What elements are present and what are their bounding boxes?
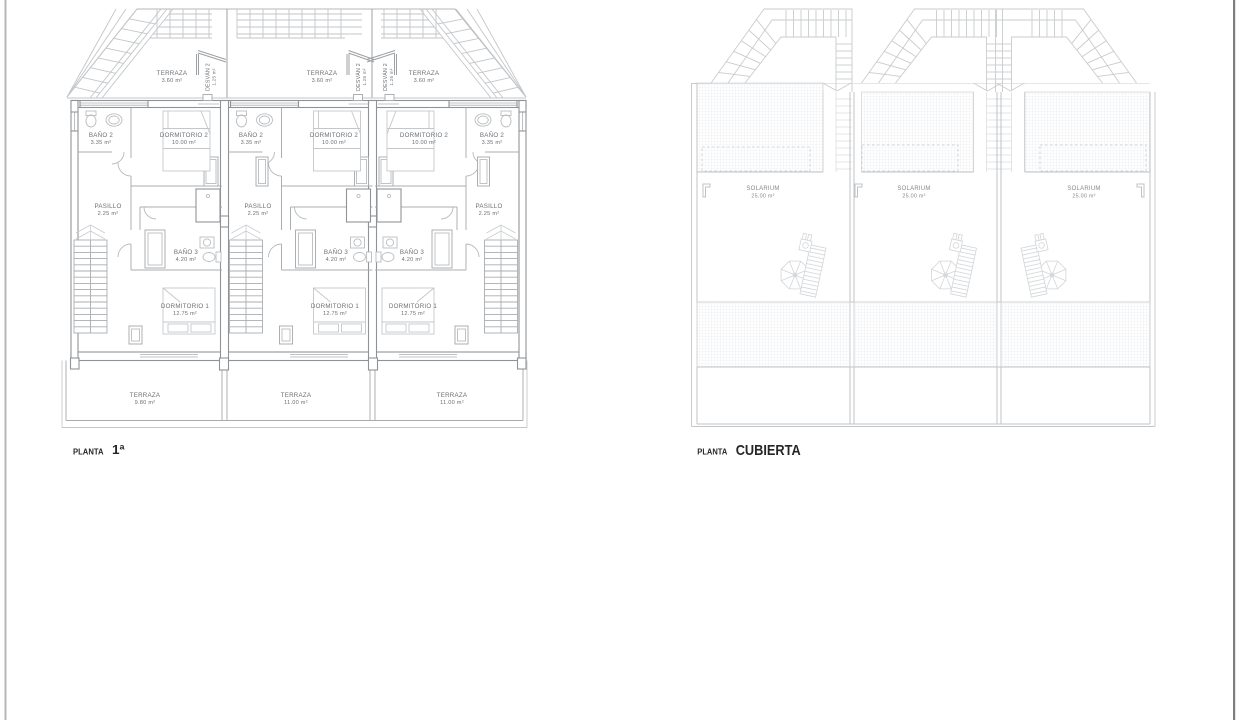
svg-text:DORMITORIO 1: DORMITORIO 1: [311, 303, 360, 310]
svg-text:4.20 m²: 4.20 m²: [326, 257, 347, 263]
svg-text:3.60 m²: 3.60 m²: [162, 78, 183, 84]
svg-text:25.00 m²: 25.00 m²: [1072, 194, 1095, 200]
svg-text:BAÑO 2: BAÑO 2: [89, 132, 114, 139]
svg-text:12.75 m²: 12.75 m²: [323, 311, 347, 317]
svg-text:10.00 m²: 10.00 m²: [172, 140, 196, 146]
svg-text:TERRAZA: TERRAZA: [409, 70, 440, 77]
svg-text:TERRAZA: TERRAZA: [157, 70, 188, 77]
svg-text:BAÑO 3: BAÑO 3: [400, 249, 425, 256]
svg-text:PASILLO: PASILLO: [244, 203, 271, 210]
svg-text:CUBIERTA: CUBIERTA: [736, 443, 801, 459]
svg-text:3.35 m²: 3.35 m²: [241, 140, 262, 146]
svg-text:2.25 m²: 2.25 m²: [479, 211, 500, 217]
svg-text:3.35 m²: 3.35 m²: [91, 140, 112, 146]
svg-text:10.00 m²: 10.00 m²: [322, 140, 346, 146]
svg-text:3.60 m²: 3.60 m²: [312, 78, 333, 84]
svg-text:4.20 m²: 4.20 m²: [402, 257, 423, 263]
svg-text:SOLARIUM: SOLARIUM: [1067, 186, 1100, 192]
svg-text:25.00 m²: 25.00 m²: [751, 194, 774, 200]
svg-text:PASILLO: PASILLO: [94, 203, 121, 210]
svg-text:9.80 m²: 9.80 m²: [135, 400, 156, 406]
svg-text:11.00 m²: 11.00 m²: [440, 400, 464, 406]
svg-text:12.75 m²: 12.75 m²: [401, 311, 425, 317]
svg-text:1ª: 1ª: [112, 442, 125, 457]
svg-text:12.75 m²: 12.75 m²: [173, 311, 197, 317]
svg-text:PLANTA: PLANTA: [697, 446, 727, 456]
svg-text:DORMITORIO 2: DORMITORIO 2: [160, 132, 209, 139]
svg-text:TERRAZA: TERRAZA: [437, 392, 468, 399]
svg-text:3.60 m²: 3.60 m²: [414, 78, 435, 84]
svg-text:PASILLO: PASILLO: [475, 203, 502, 210]
svg-text:11.00 m²: 11.00 m²: [284, 400, 308, 406]
svg-text:BAÑO 2: BAÑO 2: [239, 132, 264, 139]
svg-text:DESVÁN 2: DESVÁN 2: [205, 63, 212, 91]
svg-text:BAÑO 2: BAÑO 2: [480, 132, 505, 139]
svg-text:DESVÁN 2: DESVÁN 2: [355, 63, 362, 91]
svg-text:DORMITORIO 2: DORMITORIO 2: [400, 132, 449, 139]
svg-text:10.00 m²: 10.00 m²: [412, 140, 436, 146]
svg-text:TERRAZA: TERRAZA: [130, 392, 161, 399]
svg-text:2.25 m²: 2.25 m²: [248, 211, 269, 217]
svg-text:BAÑO 3: BAÑO 3: [174, 249, 199, 256]
svg-text:SOLARIUM: SOLARIUM: [897, 186, 930, 192]
svg-text:1.25 m²: 1.25 m²: [362, 68, 367, 86]
svg-text:SOLARIUM: SOLARIUM: [746, 186, 779, 192]
svg-text:BAÑO 3: BAÑO 3: [324, 249, 349, 256]
svg-text:2.25 m²: 2.25 m²: [98, 211, 119, 217]
svg-text:4.20 m²: 4.20 m²: [176, 257, 197, 263]
svg-text:1.25 m²: 1.25 m²: [389, 68, 394, 86]
svg-text:1.25 m²: 1.25 m²: [212, 68, 217, 86]
svg-text:TERRAZA: TERRAZA: [307, 70, 338, 77]
svg-text:DORMITORIO 1: DORMITORIO 1: [389, 303, 438, 310]
svg-text:25.00 m²: 25.00 m²: [902, 194, 925, 200]
svg-text:DESVÁN 2: DESVÁN 2: [382, 63, 389, 91]
svg-text:TERRAZA: TERRAZA: [281, 392, 312, 399]
svg-text:DORMITORIO 1: DORMITORIO 1: [161, 303, 210, 310]
svg-text:3.35 m²: 3.35 m²: [482, 140, 503, 146]
svg-text:DORMITORIO 2: DORMITORIO 2: [310, 132, 359, 139]
svg-text:PLANTA: PLANTA: [73, 446, 104, 456]
